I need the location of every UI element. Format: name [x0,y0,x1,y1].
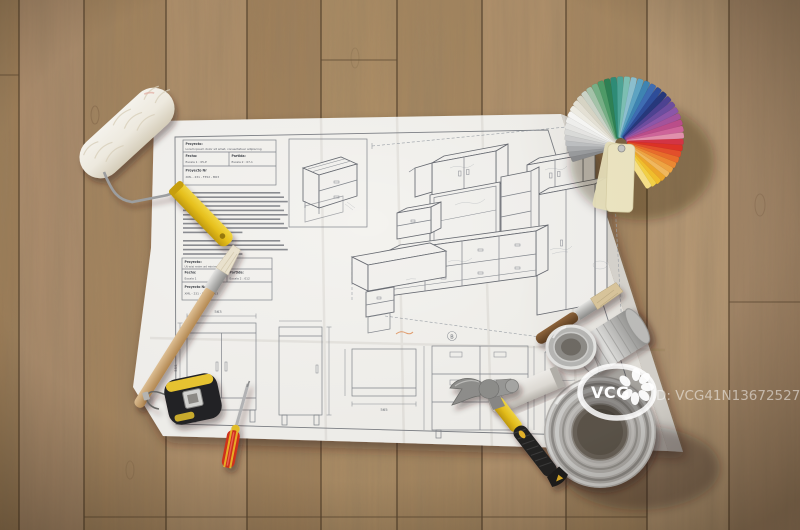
photo-svg: Proyecto: Lorem ipsum dolor sit amet, co… [0,0,800,530]
photo-vignette [0,0,800,530]
watermark-id-text: ID: VCG41N1367252723 [652,388,800,404]
photo-scene: Proyecto: Lorem ipsum dolor sit amet, co… [0,0,800,530]
